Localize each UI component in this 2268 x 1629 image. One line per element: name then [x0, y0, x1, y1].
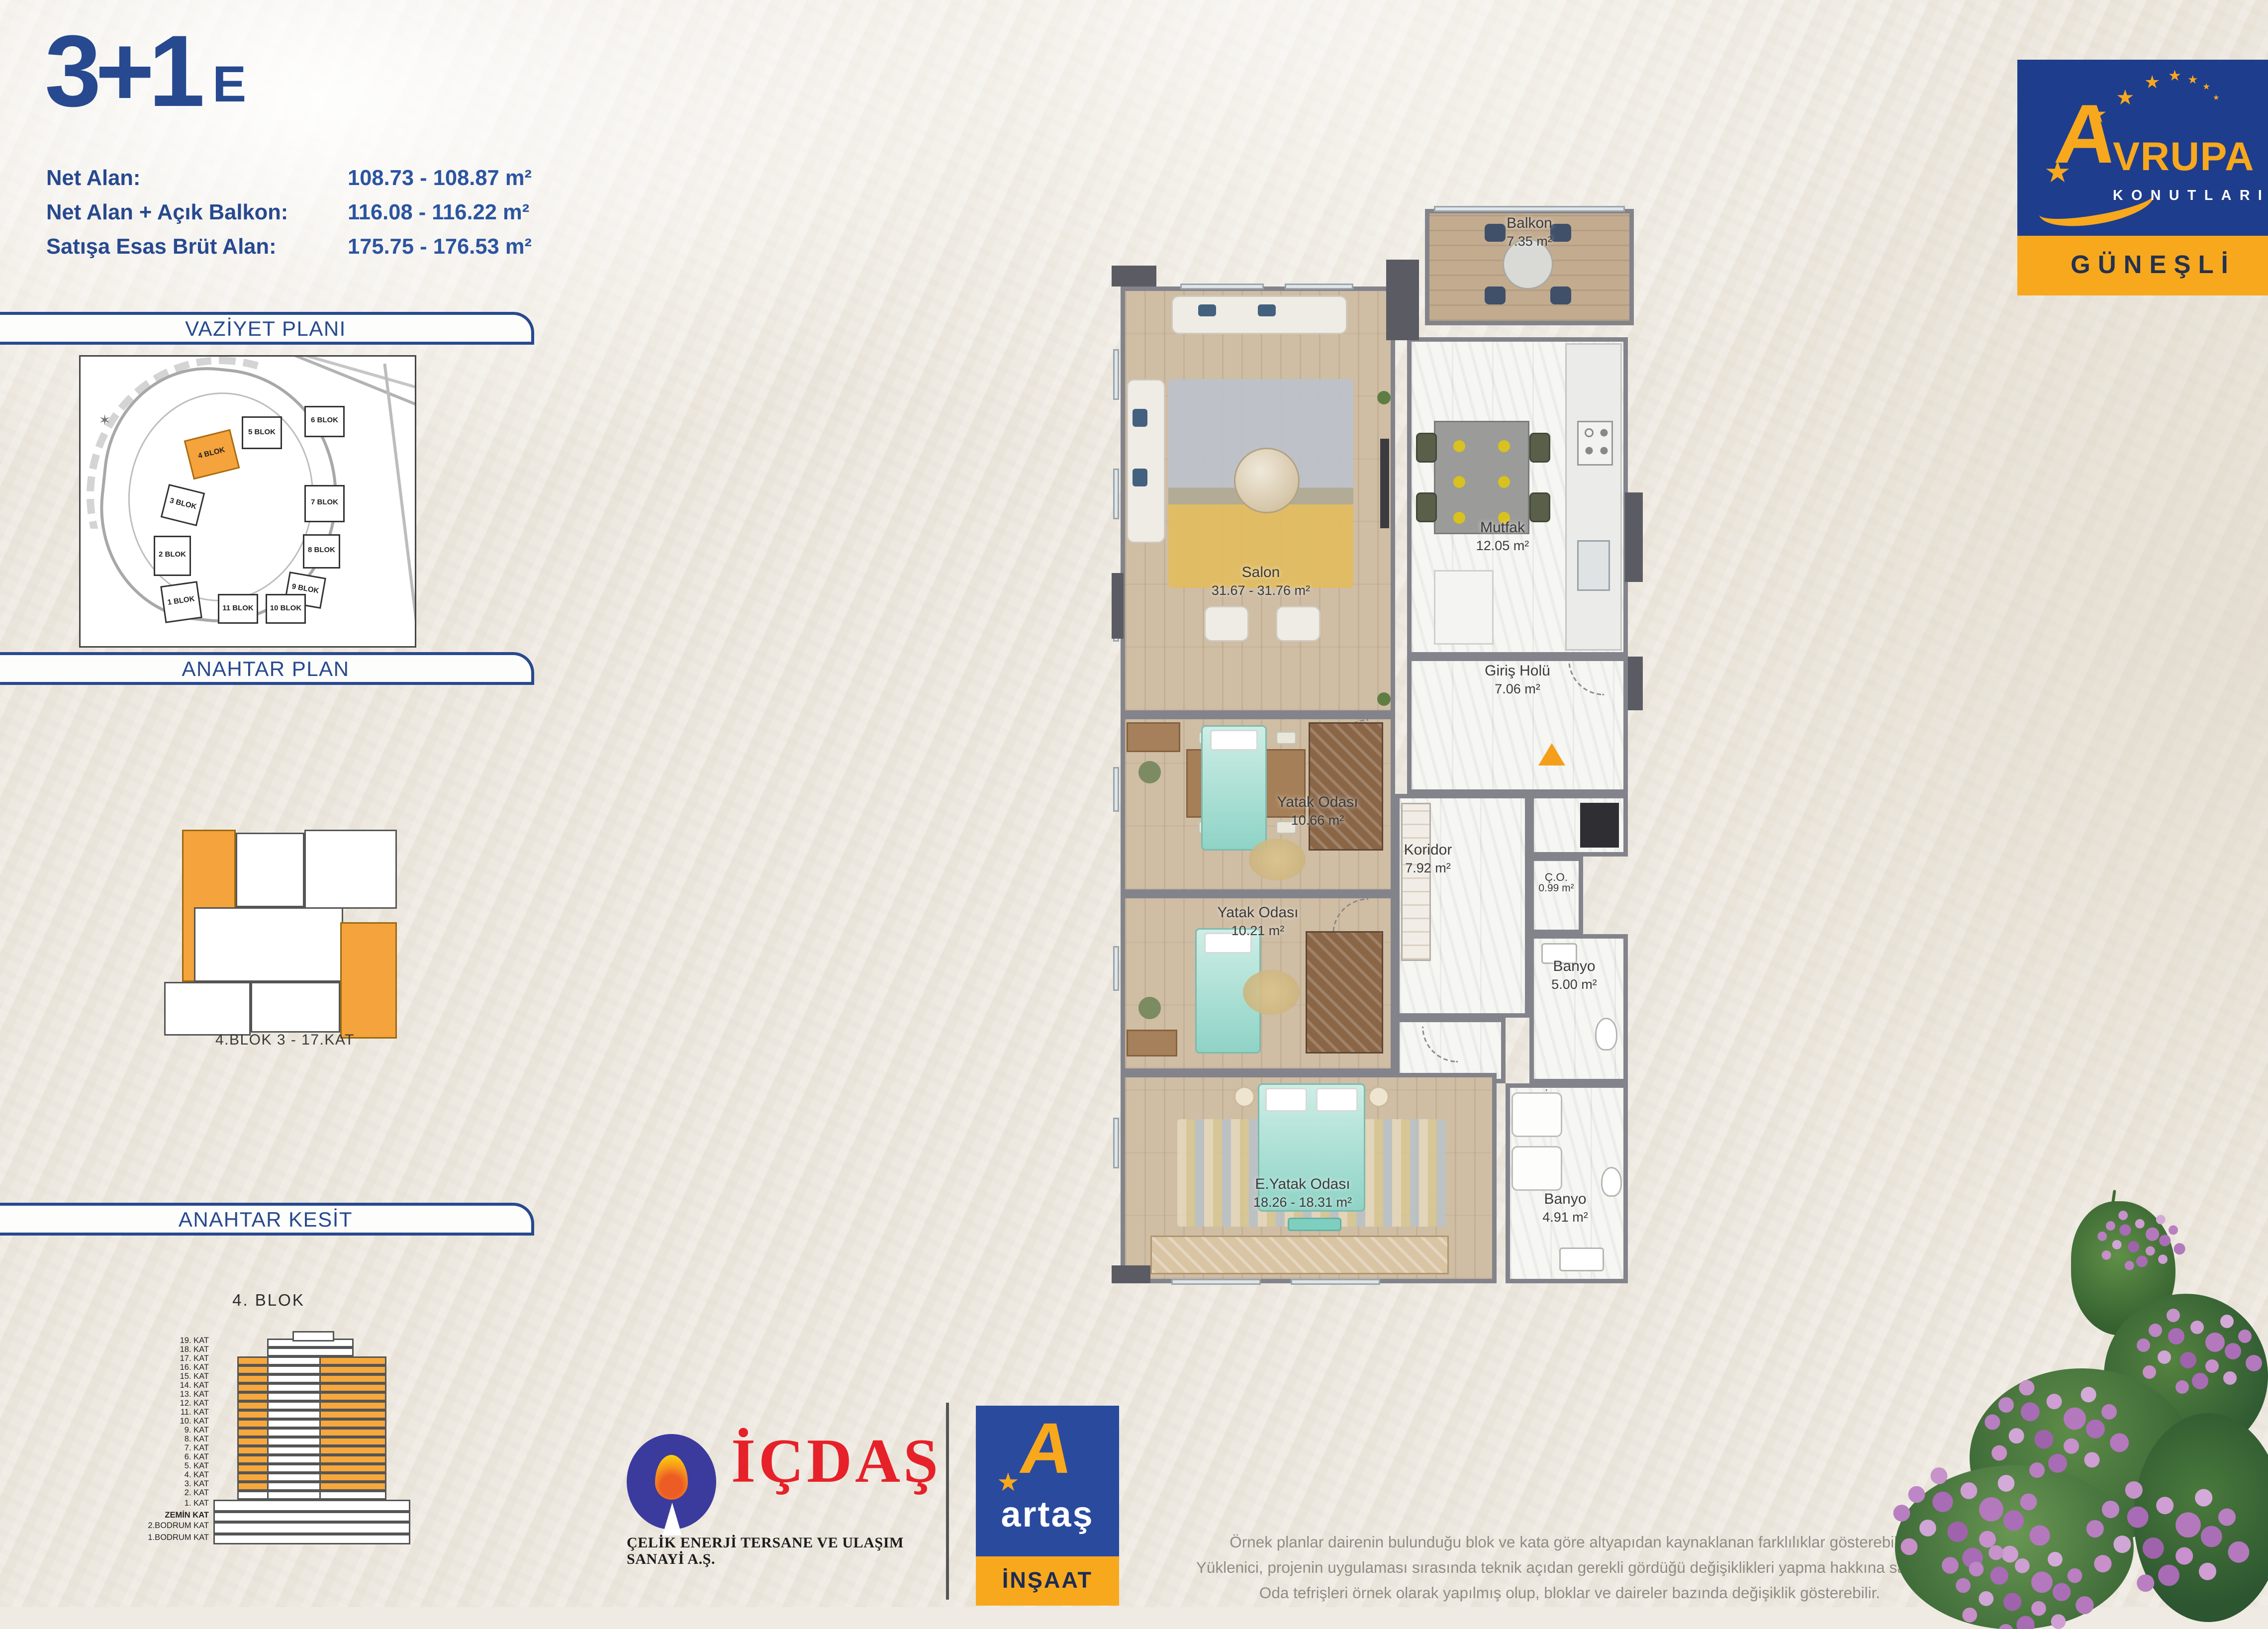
key-plan-caption: 4.BLOK 3 - 17.KAT [143, 1033, 427, 1049]
site-block-7: 7 BLOK [304, 485, 345, 522]
logo-letter-a: A [2052, 93, 2121, 176]
plates [1453, 440, 1465, 452]
sofa-cushion [1198, 304, 1216, 316]
floor-bar-highlighted [237, 1419, 386, 1428]
shower-tray [1512, 1092, 1562, 1137]
balcony-chair [1485, 224, 1506, 242]
disclaimer-line: Örnek planlar dairenin bulunduğu blok ve… [1152, 1531, 1987, 1556]
star-icon: ★ [2144, 73, 2160, 91]
flower-cluster [1969, 1561, 1984, 1576]
area-row: Net Alan + Açık Balkon: 116.08 - 116.22 … [46, 195, 583, 230]
wardrobe [1306, 931, 1383, 1054]
logo-line2: KONUTLARI [2113, 188, 2268, 204]
avrupa-konutlari-logo: ★ ★ ★ ★ ★ ★ ★ ★ A VRUPA KONUTLARI GÜNEŞL… [2017, 60, 2268, 295]
floor-bar-highlighted [237, 1374, 386, 1383]
key-section-floor-row: 7. KAT [127, 1446, 410, 1455]
site-block-10: 10 BLOK [266, 594, 306, 624]
logo-blue-box: ★ ★ ★ ★ ★ ★ ★ ★ A VRUPA KONUTLARI [2017, 60, 2268, 236]
floor-bar-highlighted [237, 1482, 386, 1491]
nightstand [1368, 1086, 1389, 1107]
floor-label: 1.BODRUM KAT [127, 1533, 213, 1545]
kitchen-table [1434, 421, 1529, 534]
key-section-floor-row: 2. KAT [127, 1491, 410, 1500]
armchair [1276, 606, 1321, 642]
key-plan-unit [164, 982, 251, 1036]
key-plan-unit [251, 982, 340, 1033]
icdas-name: İÇDAŞ [731, 1431, 941, 1494]
key-section-floor-row: 16. KAT [127, 1365, 410, 1374]
plant [1377, 391, 1391, 404]
artas-band: İNŞAAT [976, 1556, 1119, 1606]
floor-bar-highlighted [237, 1455, 386, 1464]
window [1291, 1279, 1380, 1285]
wall-segment [1112, 573, 1124, 639]
flower-cluster [2102, 1500, 2119, 1518]
logo-location-band: GÜNEŞLİ [2017, 236, 2268, 295]
floor-bar-highlighted [237, 1365, 386, 1374]
unit-type: 3+1 [45, 24, 199, 120]
room-label-yatak1: Yatak Odası 10.66 m² [1277, 795, 1358, 829]
key-section-floor-row: 19. KAT [127, 1339, 410, 1347]
section-header-key-plan: ANAHTAR PLAN [0, 652, 534, 685]
balcony-chair [1550, 224, 1571, 242]
desk [1127, 1030, 1177, 1056]
section-title: ANAHTAR PLAN [182, 657, 349, 680]
flame-icon [655, 1455, 688, 1500]
flower-cluster [2149, 1323, 2162, 1337]
floor-label: ZEMİN KAT [127, 1511, 213, 1523]
desk-chair [1138, 761, 1161, 783]
floor-bar [213, 1533, 410, 1545]
balcony-rail [1434, 206, 1625, 212]
kitchen-chair [1416, 492, 1437, 522]
desk [1127, 722, 1180, 752]
page-title: 3+1 E [45, 24, 246, 120]
kitchen-cabinet [1434, 570, 1494, 645]
section-title: ANAHTAR KESİT [179, 1207, 353, 1231]
floor-plan: Balkon 7.35 m² Salon 31.67 - 31.76 m² Mu… [1112, 200, 1649, 1289]
wardrobe [1309, 722, 1383, 851]
sofa-cushion [1133, 469, 1147, 486]
pillow [1316, 1088, 1358, 1112]
key-section-floor-row: 15. KAT [127, 1374, 410, 1383]
window [1113, 946, 1119, 991]
floor-bar-highlighted [237, 1410, 386, 1419]
logo-divider [946, 1403, 948, 1600]
site-block-5: 5 BLOK [242, 416, 282, 449]
key-section-floor-row: 6. KAT [127, 1455, 410, 1464]
floor-bar-highlighted [237, 1464, 386, 1473]
salon-sofa-side [1127, 379, 1165, 543]
burner [1585, 428, 1594, 437]
plant [1377, 692, 1391, 706]
floor-label: 1. KAT [127, 1500, 213, 1511]
icdas-logo: İÇDAŞ ÇELİK ENERJİ TERSANE VE ULAŞIM SAN… [627, 1422, 955, 1586]
site-block-6: 6 BLOK [304, 406, 345, 437]
floor-bar [237, 1491, 386, 1500]
window [1171, 1279, 1261, 1285]
floor-bar [213, 1511, 410, 1523]
section-header-key-section: ANAHTAR KESİT [0, 1203, 534, 1236]
nightstand [1234, 1086, 1255, 1107]
star-icon: ★ [2168, 70, 2181, 85]
floor-bar [267, 1339, 354, 1347]
round-rug [1249, 839, 1306, 880]
room-label-giris: Giriş Holü 7.06 m² [1485, 664, 1550, 697]
room-label-yatak2: Yatak Odası 10.21 m² [1218, 905, 1299, 939]
room-label-banyo2: Banyo 4.91 m² [1542, 1192, 1588, 1226]
disclaimer-line: Yüklenici, projenin uygulaması sırasında… [1152, 1556, 1987, 1581]
armchair [1204, 606, 1249, 642]
key-section-floor-row: 1.BODRUM KAT [127, 1533, 410, 1545]
sink-icon [1577, 540, 1610, 591]
site-block-2: 2 BLOK [154, 536, 191, 576]
key-section-floor-row: 18. KAT [127, 1347, 410, 1356]
floor-bar [213, 1522, 410, 1533]
toilet-icon [1601, 1167, 1622, 1197]
star-icon: ★ [2213, 96, 2219, 103]
wardrobe-row [1150, 1236, 1449, 1274]
floor-bar-highlighted [237, 1437, 386, 1446]
kitchen-chair [1529, 492, 1550, 522]
room-label-mutfak: Mutfak 12.05 m² [1476, 520, 1529, 554]
key-section-floor-row: 2.BODRUM KAT [127, 1522, 410, 1533]
flower-decoration [1880, 1189, 2268, 1607]
entrance-arrow-icon [1538, 743, 1565, 766]
section-title: VAZİYET PLANI [185, 316, 346, 340]
tv-unit [1380, 439, 1389, 528]
site-plan-map: ✶ 1 BLOK 2 BLOK 3 BLOK 4 BLOK 5 BLOK 6 B… [79, 355, 416, 648]
balcony-chair [1485, 287, 1506, 304]
area-label: Net Alan: [46, 167, 348, 191]
window [1285, 284, 1353, 289]
flower-cluster [1908, 1486, 1925, 1503]
wall-segment [1112, 266, 1156, 287]
floor-bar-highlighted [237, 1428, 386, 1437]
logo-wordmark: VRUPA [2113, 134, 2255, 181]
window [1180, 284, 1264, 289]
room-label-balkon: Balkon 7.35 m² [1507, 216, 1552, 250]
round-rug [1243, 970, 1300, 1015]
area-value: 116.08 - 116.22 m² [348, 201, 529, 225]
key-section-floor-row: 9. KAT [127, 1428, 410, 1437]
key-plan-unit-highlight [340, 922, 397, 1039]
site-block-1: 1 BLOK [160, 581, 202, 623]
flower-cluster [2106, 1221, 2115, 1230]
road [383, 364, 416, 637]
room-label-koridor: Koridor 7.92 m² [1404, 843, 1452, 876]
unit-variant: E [212, 56, 246, 114]
floor-bar-highlighted [237, 1356, 386, 1365]
foliage [1895, 1465, 2134, 1629]
key-section-floor-row: 1. KAT [127, 1500, 410, 1511]
bathtub [1512, 1146, 1562, 1191]
wall-segment [1112, 1265, 1150, 1283]
key-section-floor-row: 3. KAT [127, 1482, 410, 1491]
floor-bar-highlighted [237, 1392, 386, 1401]
sofa-cushion [1133, 409, 1147, 427]
window [1113, 469, 1119, 519]
key-section-floor-row: 14. KAT [127, 1383, 410, 1392]
disclaimer-line: Oda tefrişleri örnek olarak yapılmış olu… [1152, 1581, 1987, 1606]
floor-label: 2. KAT [127, 1491, 213, 1500]
key-plan-drawing [149, 830, 425, 1033]
pillow [1265, 1088, 1307, 1112]
artas-logo: A ★ artaş İNŞAAT [976, 1406, 1119, 1615]
wall-segment [1625, 492, 1643, 582]
compass-icon: ✶ [98, 413, 111, 430]
bathroom-sink [1559, 1247, 1604, 1271]
desk-chair [1138, 997, 1161, 1019]
toilet-icon [1595, 1018, 1617, 1051]
kitchen-counter [1565, 343, 1622, 651]
logo-location: GÜNEŞLİ [2071, 251, 2236, 281]
sofa-cushion [1258, 304, 1276, 316]
window [1113, 1118, 1119, 1168]
artas-subtitle: İNŞAAT [1002, 1568, 1093, 1594]
dining-chair [1276, 731, 1297, 745]
room-label-eyatak: E.Yatak Odası 18.26 - 18.31 m² [1253, 1177, 1352, 1211]
wall-segment [1386, 260, 1419, 340]
key-section-caption: 4. BLOK [127, 1292, 410, 1310]
area-row: Net Alan: 108.73 - 108.87 m² [46, 161, 583, 195]
floor-bar-highlighted [237, 1446, 386, 1455]
floor-bar-highlighted [237, 1401, 386, 1410]
area-summary: Net Alan: 108.73 - 108.87 m² Net Alan + … [46, 161, 583, 264]
site-block-8: 8 BLOK [303, 534, 340, 569]
star-icon: ★ [2202, 84, 2210, 93]
key-section-floor-row: 13. KAT [127, 1392, 410, 1401]
area-label: Net Alan + Açık Balkon: [46, 201, 348, 225]
window [1113, 767, 1119, 812]
floor-bar-highlighted [237, 1383, 386, 1392]
flower-cluster [1998, 1397, 2014, 1412]
coffee-table [1234, 448, 1300, 513]
area-row: Satışa Esas Brüt Alan: 175.75 - 176.53 m… [46, 230, 583, 264]
icdas-subtitle: ÇELİK ENERJİ TERSANE VE ULAŞIM SANAYİ A.… [627, 1535, 955, 1568]
area-value: 108.73 - 108.87 m² [348, 167, 532, 191]
key-section-floor-row: 8. KAT [127, 1437, 410, 1446]
hall-closet [1401, 803, 1431, 961]
key-section-floor-row: 5. KAT [127, 1464, 410, 1473]
section-header-site-plan: VAZİYET PLANI [0, 312, 534, 345]
key-section-floor-row: 4. KAT [127, 1473, 410, 1482]
site-block-11: 11 BLOK [218, 594, 258, 624]
key-section-floor-row: 10. KAT [127, 1419, 410, 1428]
key-plan-unit [236, 833, 304, 907]
key-section-floor-row: ZEMİN KAT [127, 1511, 410, 1523]
window [1113, 349, 1119, 400]
floor-label: 2.BODRUM KAT [127, 1522, 213, 1533]
floor-bar [213, 1500, 410, 1511]
key-plan-unit [304, 830, 397, 909]
flame-notch [662, 1503, 682, 1535]
kitchen-chair [1416, 433, 1437, 463]
artas-letter-a: A [1016, 1415, 1077, 1486]
key-section-tower: 19. KAT18. KAT17. KAT16. KAT15. KAT14. K… [127, 1339, 410, 1550]
pillow [1210, 730, 1258, 751]
artas-blue-box: A ★ artaş [976, 1406, 1119, 1556]
star-icon: ★ [997, 1468, 1020, 1498]
stove-icon [1577, 421, 1613, 466]
shaft-dark [1580, 803, 1619, 848]
floor-bar-highlighted [237, 1473, 386, 1482]
key-section-floor-row: 17. KAT [127, 1356, 410, 1365]
room-label-salon: Salon 31.67 - 31.76 m² [1212, 565, 1310, 599]
kitchen-chair [1529, 433, 1550, 463]
disclaimer: Örnek planlar dairenin bulunduğu blok ve… [1152, 1531, 1987, 1606]
room-label-co: Ç.O. 0.99 m² [1460, 870, 1653, 896]
bed-bench [1288, 1218, 1341, 1231]
icdas-oval-icon [627, 1434, 716, 1530]
floor-bar [267, 1347, 354, 1356]
star-icon: ★ [2187, 75, 2198, 87]
area-label: Satışa Esas Brüt Alan: [46, 235, 348, 259]
artas-name: artaş [976, 1495, 1119, 1537]
wall-segment [1628, 657, 1643, 710]
key-section-floor-row: 11. KAT [127, 1410, 410, 1419]
brochure-page: 3+1 E Net Alan: 108.73 - 108.87 m² Net A… [0, 0, 2268, 1607]
room-label-banyo1: Banyo 5.00 m² [1551, 959, 1597, 993]
key-section-floor-row: 12. KAT [127, 1401, 410, 1410]
key-plan-core [194, 907, 343, 982]
balcony-chair [1550, 287, 1571, 304]
area-value: 175.75 - 176.53 m² [348, 235, 532, 259]
